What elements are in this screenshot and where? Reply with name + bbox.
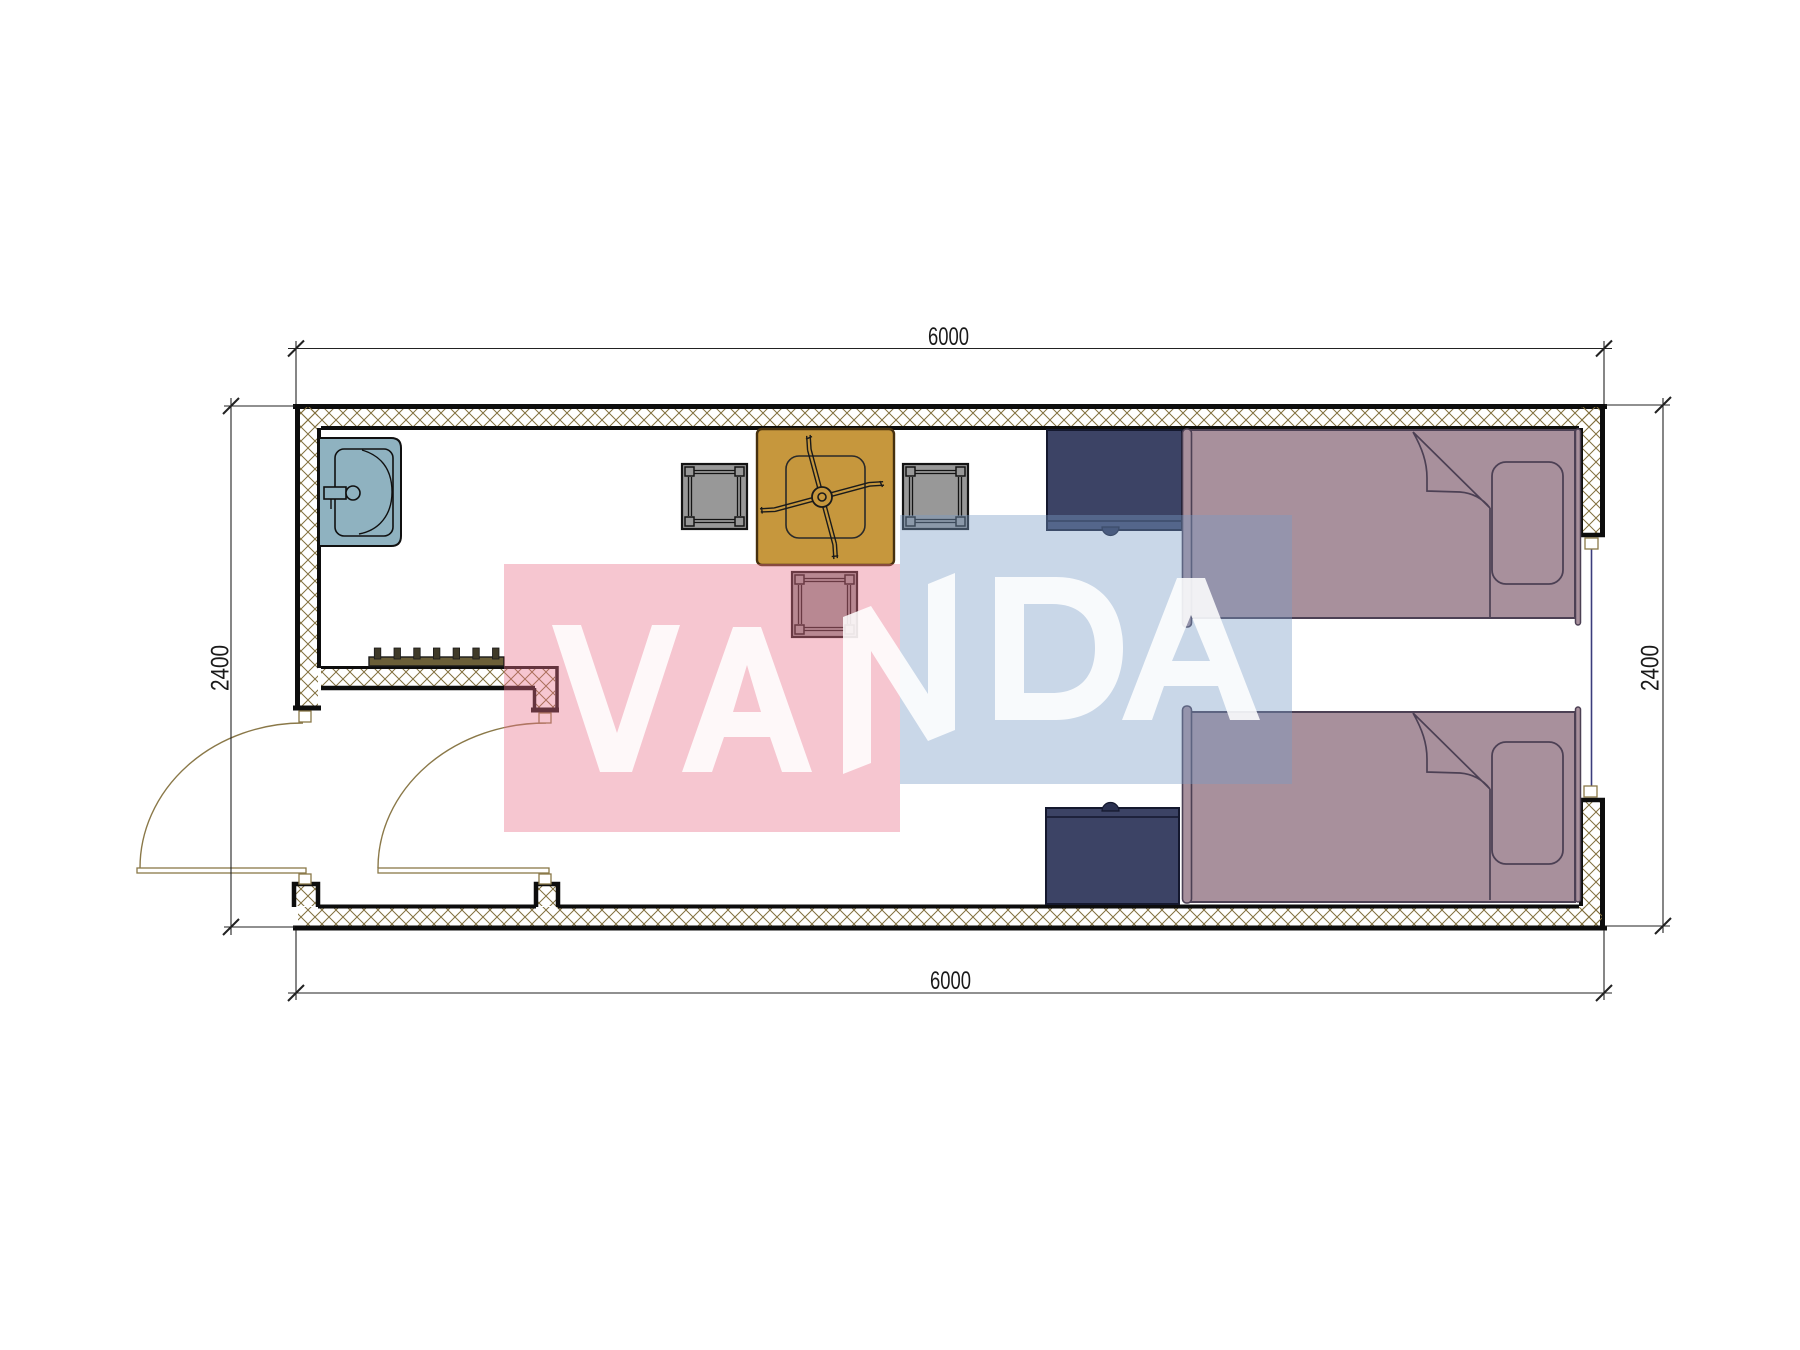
svg-text:2400: 2400	[207, 645, 235, 691]
svg-text:6000: 6000	[928, 323, 969, 351]
svg-text:2400: 2400	[1637, 645, 1665, 691]
svg-text:6000: 6000	[930, 967, 971, 995]
